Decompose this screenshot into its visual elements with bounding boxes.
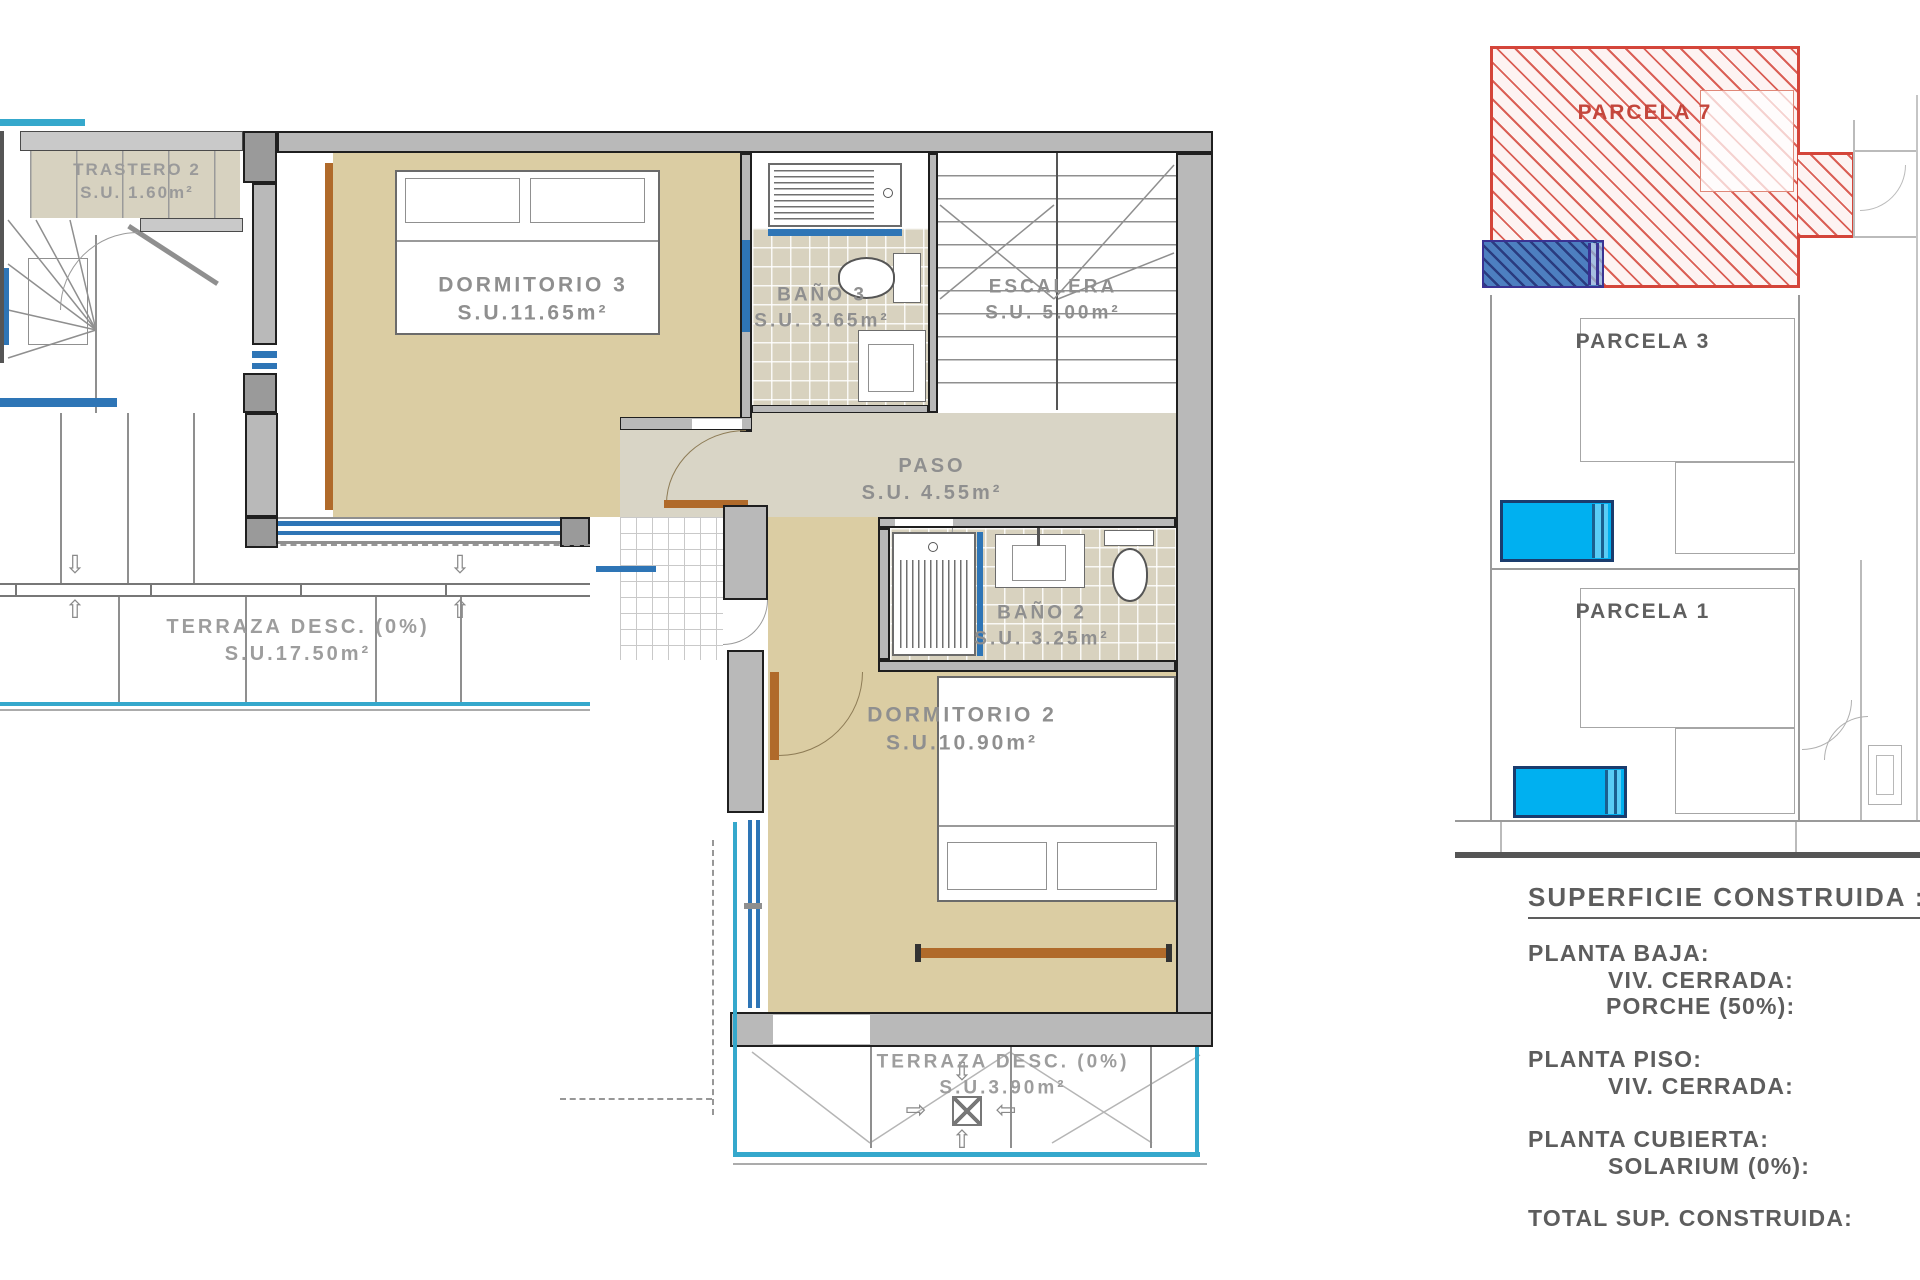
terrace-glass-south	[733, 1152, 1200, 1157]
room-label-paso: PASO S.U. 4.55m²	[862, 453, 1003, 507]
drainage-arrow-up-icon: ⇧	[65, 595, 86, 625]
terrace-outer-edge-2	[733, 1163, 1207, 1165]
wall-corner-column	[243, 131, 277, 183]
deck-divider	[870, 1047, 872, 1148]
neighbor-wall	[1855, 150, 1918, 152]
window-dorm2-west-2	[756, 820, 760, 1008]
summary-line-planta-baja: PLANTA BAJA:	[1528, 940, 1710, 967]
window-band-edge	[278, 517, 590, 519]
wall-bano2-south	[878, 660, 1176, 672]
window-stair-south	[0, 398, 117, 407]
wall-bano3-south	[752, 405, 928, 413]
deck-divider	[127, 413, 129, 583]
site-ground-line	[1455, 820, 1920, 822]
wall-corner-block	[560, 517, 590, 547]
wall-segment	[20, 131, 243, 151]
pillow	[530, 178, 645, 223]
toilet-bano2	[1112, 548, 1148, 602]
terrace-railing	[0, 583, 590, 597]
window-dorm3-left-2	[252, 363, 277, 369]
site-tick	[1500, 822, 1502, 852]
pillow	[947, 842, 1047, 890]
window-dorm2-west	[748, 820, 752, 1008]
summary-heading: SUPERFICIE CONSTRUIDA :	[1528, 882, 1920, 919]
property-line-dashed	[712, 840, 714, 1115]
pool-steps	[1592, 504, 1608, 558]
summary-line-porche: PORCHE (50%):	[1606, 993, 1795, 1020]
railing-post	[150, 583, 152, 597]
parcela1-label: PARCELA 1	[1576, 598, 1711, 626]
wall-mid-column	[723, 505, 768, 600]
room-label-escalera: ESCALERA S.U. 5.00m²	[985, 274, 1120, 325]
sink-tap	[1037, 528, 1040, 546]
parcela7-pool-hatched	[1482, 240, 1604, 288]
pillow	[1057, 842, 1157, 890]
room-label-dormitorio3: DORMITORIO 3 S.U.11.65m²	[438, 272, 628, 329]
wall-edge-west	[0, 131, 4, 363]
terrace-outer-edge	[0, 709, 590, 711]
sideboard-end	[1166, 944, 1172, 962]
sink-basin	[868, 344, 914, 392]
property-line-dashed-2	[560, 1098, 712, 1100]
shower-drain-2	[928, 542, 938, 552]
wall-right-main	[1176, 153, 1213, 1045]
wall-dorm3-left-low	[245, 413, 278, 517]
wall-dorm3-left	[252, 183, 277, 345]
pillow	[405, 178, 520, 223]
window-dorm3-south	[278, 521, 590, 526]
window-dorm3-south-2	[278, 531, 590, 535]
terrace-boundary-dashed	[250, 544, 590, 546]
window-top-left	[0, 119, 85, 126]
pool-steps	[1605, 770, 1621, 814]
terrace-glass-west	[733, 822, 737, 1156]
parcela7-label: PARCELA 7	[1578, 99, 1713, 127]
floorplan-sheet: ⇩ ⇩ ⇧ ⇧ ⇩ ⇨ ⇦ ⇧ TRAST	[0, 0, 1920, 1280]
site-tick	[1795, 822, 1797, 852]
summary-line-planta-piso: PLANTA PISO:	[1528, 1046, 1702, 1073]
summary-line-planta-cubierta: PLANTA CUBIERTA:	[1528, 1126, 1769, 1153]
neighbor-wall	[1860, 560, 1862, 822]
pool-steps-hatched	[1588, 243, 1602, 285]
room-dormitorio2-west	[768, 517, 878, 1012]
terrace-glass-east	[1195, 1047, 1199, 1155]
shower-drain	[883, 188, 893, 198]
room-label-bano3: BAÑO 3 S.U. 3.65m²	[754, 282, 889, 333]
toilet-tank-bano3	[893, 253, 921, 303]
toilet-tank-bano2	[1104, 530, 1154, 546]
parcela3-label: PARCELA 3	[1576, 328, 1711, 356]
window-service	[596, 566, 656, 572]
plot-divider	[1490, 568, 1800, 570]
room-label-trastero2: TRASTERO 2 S.U. 1.60m²	[73, 159, 201, 205]
service-door-arc	[723, 600, 768, 645]
railing-post	[15, 583, 17, 597]
railing-post	[445, 583, 447, 597]
plot-boundary-east	[1798, 295, 1800, 822]
wall-top-main	[277, 131, 1213, 153]
sheet-edge-line	[1916, 95, 1918, 822]
terrace-left-deck-2	[283, 548, 590, 583]
neighbor-door-arc	[1860, 165, 1906, 211]
wall-under-trastero	[140, 218, 243, 232]
room-label-terraza-izquierda: TERRAZA DESC. (0%) S.U.17.50m²	[166, 614, 429, 668]
terrace-glass-edge	[0, 702, 590, 706]
summary-line-viv-cerrada-2: VIV. CERRADA:	[1608, 1073, 1794, 1100]
door-glazing-bano3	[742, 240, 750, 332]
parcela7-footprint	[1700, 90, 1794, 192]
summary-line-total: TOTAL SUP. CONSTRUIDA:	[1528, 1205, 1853, 1232]
drainage-arrow-down-icon: ⇩	[65, 550, 86, 580]
terrace-left-deck	[0, 413, 245, 583]
wall-bano2-west	[878, 528, 890, 660]
neighbor-wall	[1855, 236, 1918, 238]
drainage-arrow-up-icon: ⇧	[450, 595, 471, 625]
shower-screen-bano3	[768, 229, 902, 236]
window-mullion	[744, 903, 762, 909]
drainage-arrow-down-icon: ⇩	[450, 550, 471, 580]
window-dorm3-left	[252, 351, 277, 358]
neighbor-wall	[1853, 120, 1855, 238]
wardrobe-dorm3	[325, 163, 333, 510]
shower-grate	[774, 170, 874, 220]
summary-line-viv-cerrada: VIV. CERRADA:	[1608, 967, 1794, 994]
sink-basin-2	[1012, 545, 1066, 581]
bed-fold-line-2	[939, 825, 1174, 827]
parcela7-highlight-wing	[1798, 152, 1855, 238]
parcela1-building-wing	[1675, 728, 1795, 814]
shower-grate-2	[900, 560, 968, 648]
bed-fold-line	[397, 240, 658, 242]
summary-line-solarium: SOLARIUM (0%):	[1608, 1153, 1810, 1180]
site-section-line	[1455, 852, 1920, 858]
door-opening-dorm3	[692, 419, 742, 429]
drainage-arrow-up-icon: ⇧	[952, 1125, 973, 1155]
deck-divider	[1150, 1047, 1152, 1148]
door-opening-terrace	[773, 1015, 870, 1044]
plot-boundary-west	[1490, 295, 1492, 822]
sideboard-end	[915, 944, 921, 962]
wall-block	[243, 373, 277, 413]
deck-divider	[60, 413, 62, 583]
deck-divider	[118, 597, 120, 702]
parcela3-building-wing	[1675, 462, 1795, 554]
deck-divider	[193, 413, 195, 583]
door-opening-bano2	[895, 519, 953, 526]
room-label-terraza-inferior: TERRAZA DESC. (0%) S.U.3.90m²	[877, 1049, 1130, 1100]
room-label-bano2: BAÑO 2 S.U. 3.25m²	[974, 600, 1109, 651]
railing-post	[300, 583, 302, 597]
neighbor-fixture-inner	[1876, 755, 1894, 795]
wall-bano3-escalera	[928, 153, 938, 413]
service-void	[620, 517, 723, 660]
sideboard-dorm2	[917, 948, 1170, 958]
wall-mid-column-2	[727, 650, 764, 813]
dorm2-door-leaf	[770, 672, 779, 760]
room-label-dormitorio2: DORMITORIO 2 S.U.10.90m²	[867, 702, 1057, 759]
